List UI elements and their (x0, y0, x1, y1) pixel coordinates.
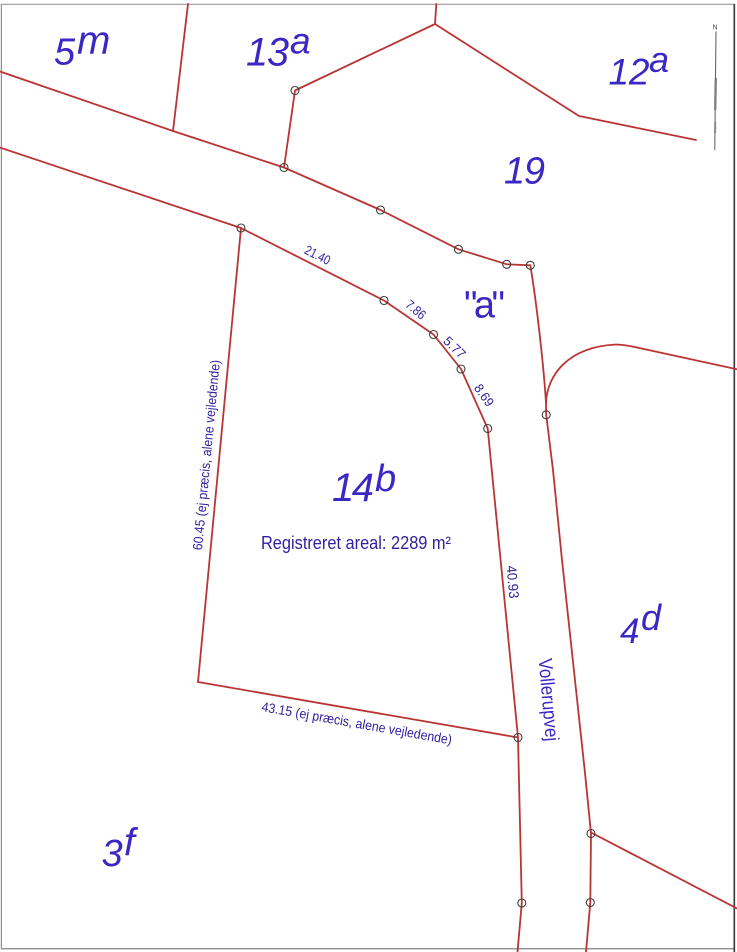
svg-text:b: b (375, 458, 396, 500)
svg-text:12: 12 (609, 52, 650, 93)
svg-text:40.93: 40.93 (504, 565, 523, 599)
svg-text:a: a (649, 39, 669, 80)
svg-text:13: 13 (246, 31, 289, 75)
svg-text:d: d (641, 597, 662, 638)
svg-text:N: N (713, 25, 718, 32)
svg-text:14: 14 (332, 466, 374, 510)
svg-text:a: a (290, 21, 311, 62)
svg-text:m: m (77, 19, 110, 63)
svg-text:"a": "a" (464, 285, 505, 327)
svg-text:5: 5 (54, 32, 76, 74)
svg-text:3: 3 (102, 833, 123, 875)
svg-text:4: 4 (620, 612, 639, 651)
svg-text:Registreret areal: 2289 m²: Registreret areal: 2289 m² (261, 533, 451, 553)
svg-text:19: 19 (504, 151, 545, 193)
